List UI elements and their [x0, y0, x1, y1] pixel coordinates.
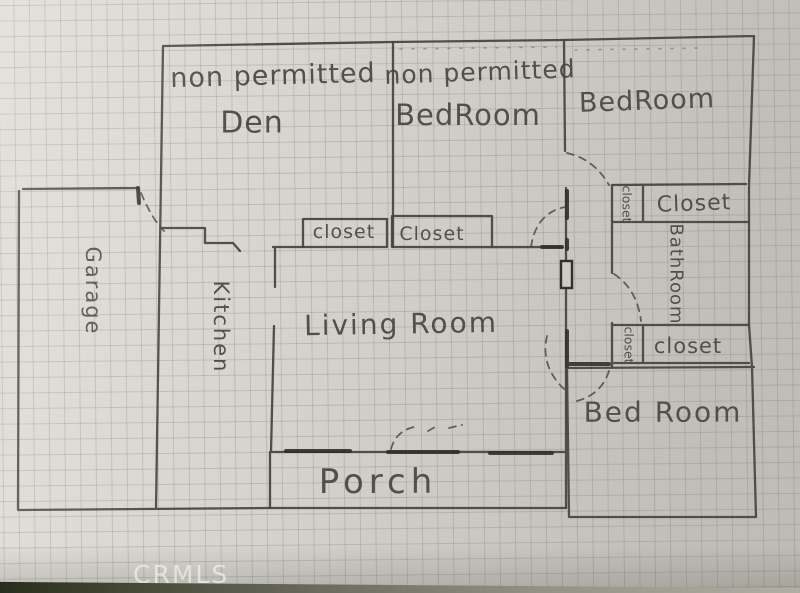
photo-lighting-overlay	[0, 0, 800, 593]
floor-plan-photo: non permitted Den non permitted BedRoom …	[0, 0, 800, 593]
